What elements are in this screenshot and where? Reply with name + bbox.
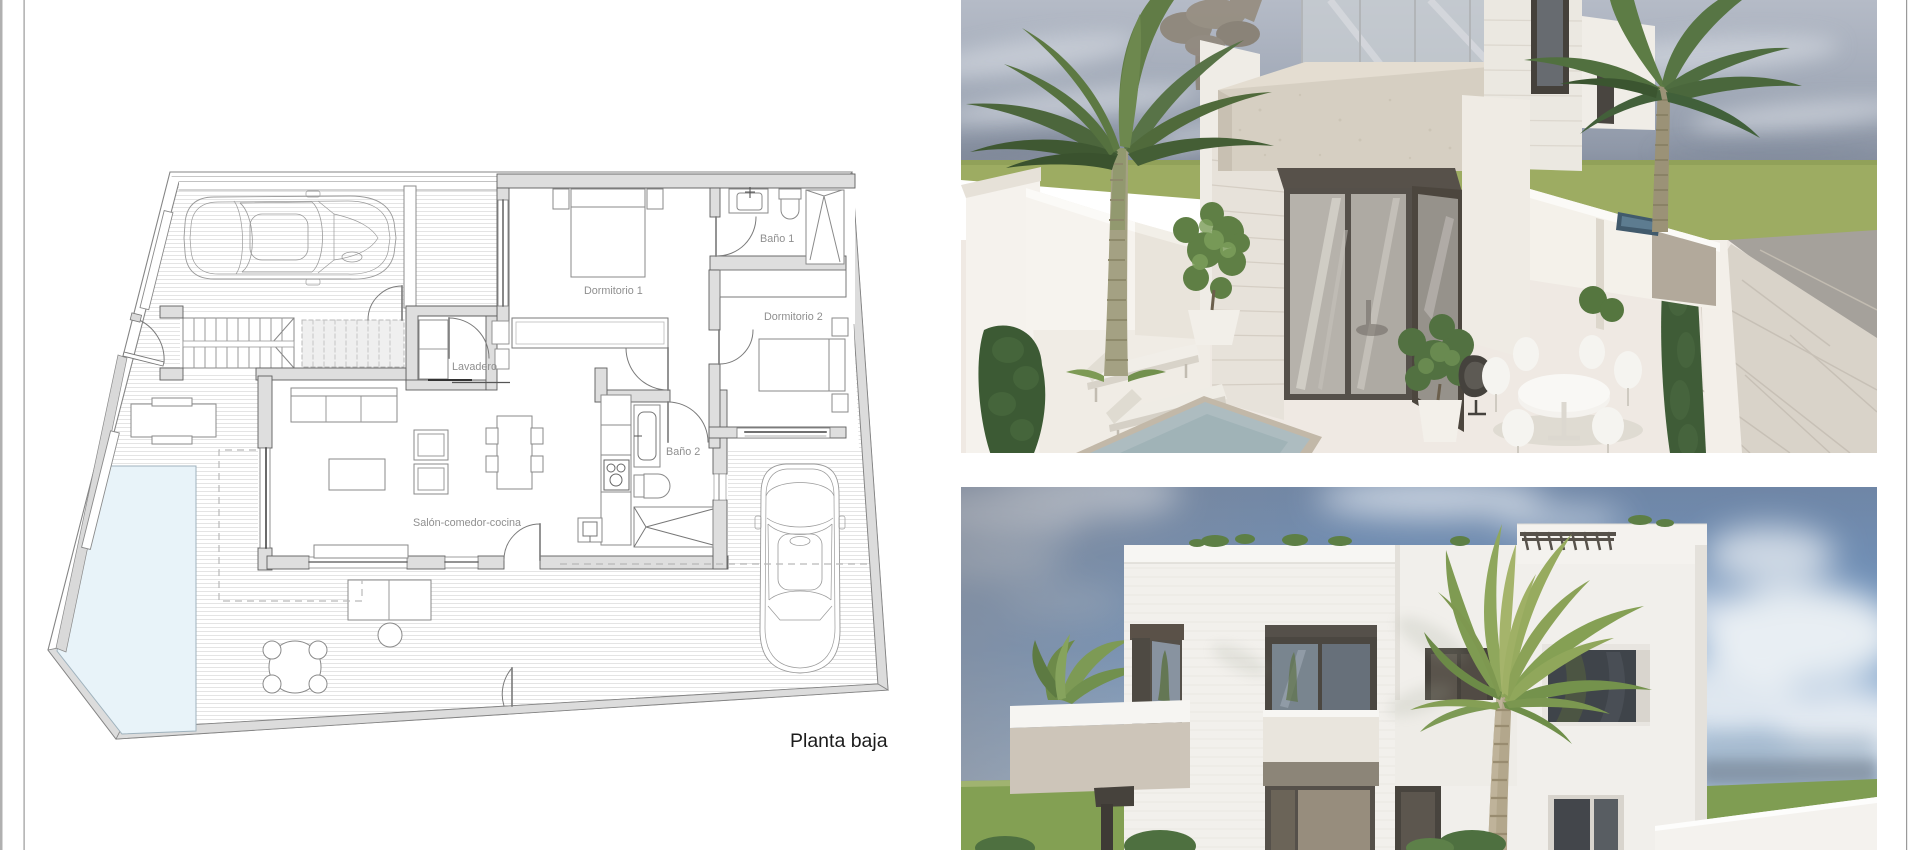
svg-text:Baño 1: Baño 1 [760,233,794,245]
svg-text:Lavadero: Lavadero [452,361,497,373]
svg-text:Dormitorio 1: Dormitorio 1 [584,285,643,297]
svg-text:Dormitorio 2: Dormitorio 2 [764,311,823,323]
svg-text:Salón-comedor-cocina: Salón-comedor-cocina [413,517,521,529]
svg-text:Baño 2: Baño 2 [666,446,700,458]
svg-text:Planta baja: Planta baja [790,730,888,752]
